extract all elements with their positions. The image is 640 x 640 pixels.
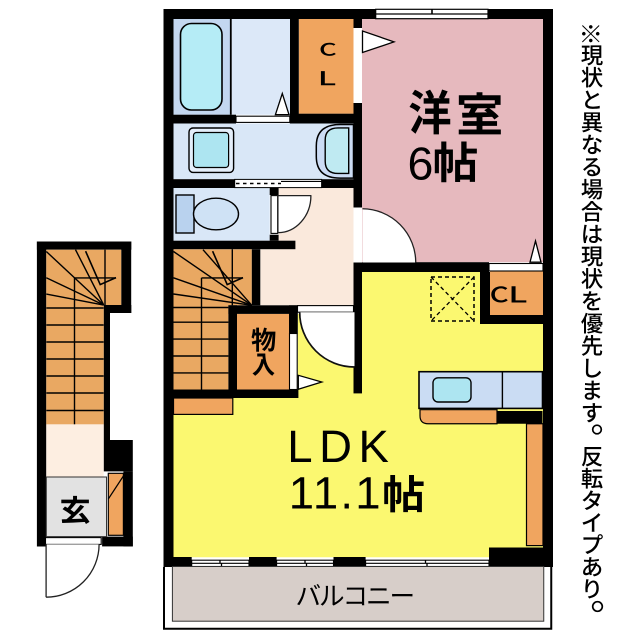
svg-text:LDK: LDK	[287, 421, 395, 472]
svg-text:11.1: 11.1	[289, 468, 383, 519]
svg-text:6: 6	[408, 137, 434, 189]
